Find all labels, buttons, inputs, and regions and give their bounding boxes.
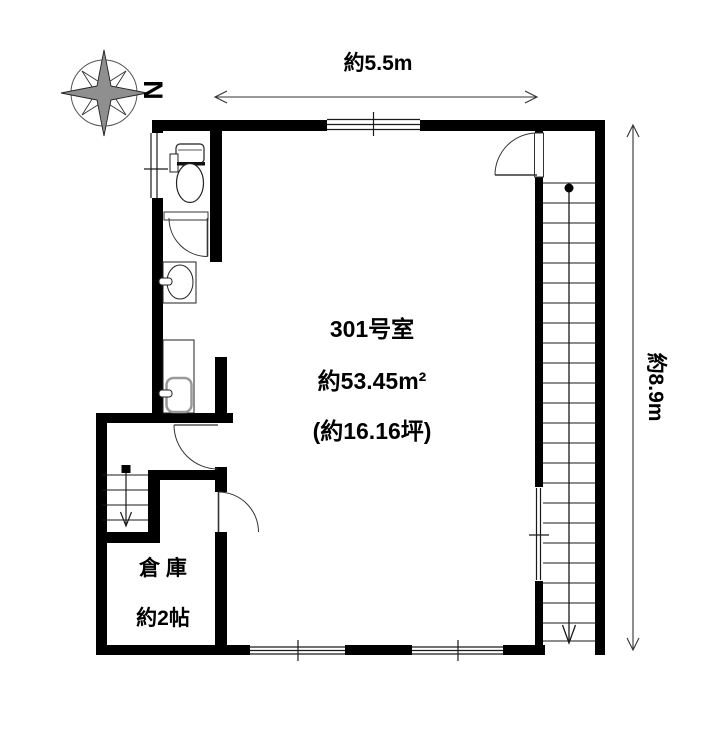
toilet-door-frame <box>164 212 208 220</box>
dimension-arrow-width <box>215 91 537 103</box>
mini-kitchen-icon <box>159 340 194 413</box>
sink-icon <box>159 262 196 303</box>
dimension-arrow-height <box>627 125 639 650</box>
stairs-start-dot <box>565 184 574 193</box>
room-area-tsubo-label: (約16.16坪) <box>252 419 492 444</box>
entry-door-frame <box>535 133 544 177</box>
vestibule-door <box>174 425 218 469</box>
window-bottom-right <box>412 640 503 661</box>
storage-name-label: 倉 庫 <box>100 557 226 580</box>
compass-north-label: N <box>135 74 167 106</box>
staircase-main <box>543 183 595 643</box>
staircase-small <box>102 465 148 526</box>
storage-size-label: 約2帖 <box>100 607 226 630</box>
window-bottom-left <box>250 640 345 661</box>
room-area-sqm-label: 約53.45m² <box>252 369 492 394</box>
small-stairs-start-dot <box>122 465 131 473</box>
toilet-icon <box>170 144 205 203</box>
toilet-door <box>169 218 208 257</box>
dimension-width-label: 約5.5m <box>298 52 458 75</box>
room-number-label: 301号室 <box>252 317 492 342</box>
entry-door <box>495 133 537 175</box>
dimension-height-label: 約8.9m <box>641 307 667 467</box>
floor-plan: N 約5.5m 約8.9m 301号室 約53.45m² (約16.16坪) 倉… <box>0 0 727 739</box>
